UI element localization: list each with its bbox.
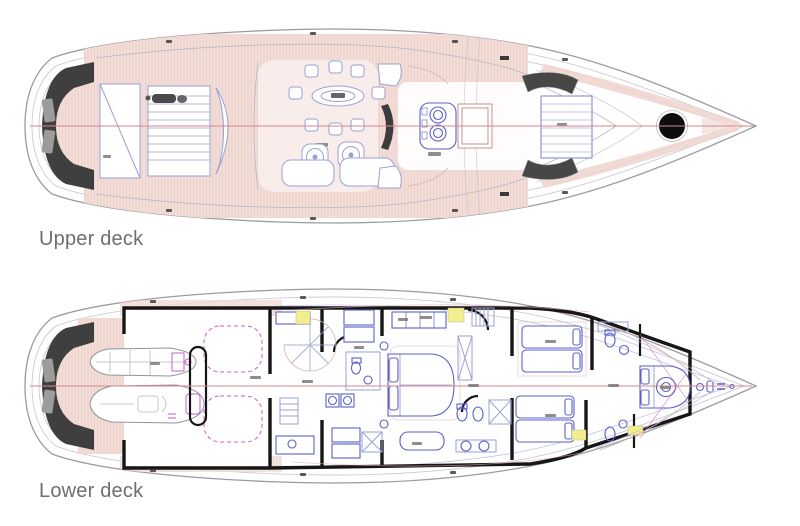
jacuzzi [420, 103, 456, 156]
aft-sun-lounger [146, 86, 211, 176]
lower-deck-plan [25, 289, 756, 483]
corner-seat-port [378, 64, 401, 86]
yacht-deck-plans: Upper deck Lower deck [0, 0, 800, 526]
corner-seat-starboard [378, 166, 401, 188]
tender-boat-2 [90, 385, 204, 423]
tender-boat [90, 348, 196, 376]
foredeck-sunpad [541, 96, 592, 158]
lower-deck-label: Lower deck [39, 480, 143, 503]
aft-deck-hatch [100, 84, 140, 178]
master-sofa [400, 432, 444, 450]
upper-deck-plan [25, 29, 756, 223]
upper-deck-label: Upper deck [39, 228, 143, 251]
deck-plan-drawing [0, 0, 800, 526]
